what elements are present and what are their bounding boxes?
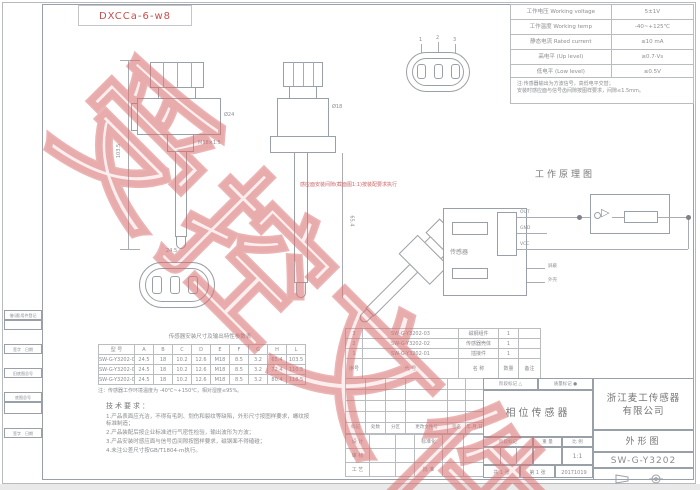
scan-edge	[0, 484, 700, 490]
margin-block-old-no: 旧底图总号	[4, 368, 42, 378]
principle-connector	[497, 212, 517, 256]
table-cell	[406, 390, 448, 401]
table-cell: 工 艺	[346, 463, 370, 477]
table-cell: 序号	[346, 359, 363, 379]
table-cell: 审 核	[346, 449, 370, 463]
marks-right-label: 质量标记 ●	[539, 382, 592, 388]
weight-value-cell	[533, 447, 562, 465]
table-cell: 静态电流 Rated current	[511, 35, 612, 50]
pin-label-1: 1	[419, 37, 422, 43]
param-note: 注：传感器工作环境温度为 -40℃~+150℃，相对湿度≤95%。	[98, 388, 242, 394]
wire-vcc	[517, 249, 688, 250]
table-cell	[406, 401, 448, 412]
table-cell	[370, 435, 396, 449]
table-cell	[466, 390, 484, 401]
table-cell: M18	[211, 365, 230, 375]
table-cell: 65.4	[268, 355, 287, 365]
table-cell	[464, 463, 484, 477]
product-name: 相位传感器	[484, 391, 592, 436]
table-cell: 分区	[386, 423, 406, 434]
margin-block	[4, 402, 42, 414]
table-cell	[386, 379, 406, 390]
wire-case	[527, 282, 545, 283]
table-cell: SW-G-Y3202-01	[363, 349, 459, 359]
side-connector-line	[313, 62, 314, 87]
table-cell: 数量	[499, 359, 519, 379]
margin-block-base-no: 底图总号	[4, 392, 42, 402]
table-cell: 3	[346, 329, 363, 339]
front-connector-line	[163, 62, 164, 88]
table-cell: 3.2	[249, 355, 268, 365]
table-cell: 标准化	[415, 435, 443, 449]
margin-label: 借(通)用件登记	[5, 313, 41, 319]
sheet-no-cell: 第 1 张	[520, 465, 555, 478]
table-cell	[448, 412, 466, 423]
drawing-no-cell: SW-G-Y3202	[593, 452, 694, 468]
table-cell: 型 号	[99, 345, 135, 355]
margin-label: 签字 日期	[5, 431, 41, 437]
table-cell: SW-G-Y3202-02	[99, 365, 135, 375]
table-cell: 设 计	[346, 435, 370, 449]
detail-pin	[451, 64, 460, 79]
table-cell	[366, 390, 386, 401]
table-cell	[386, 401, 406, 412]
product-name-cell: 相位传感器	[483, 390, 593, 437]
dimension-tick	[120, 60, 140, 61]
junction-dot	[577, 215, 582, 220]
margin-block-sign1: 签字 日期	[4, 344, 42, 354]
table-cell: 110.5	[287, 365, 306, 375]
table-cell	[396, 449, 415, 463]
junction-dot	[686, 215, 691, 220]
table-cell: 3.2	[249, 375, 268, 385]
side-tip	[296, 282, 306, 298]
terminal-slot	[188, 276, 198, 294]
table-cell: 高电平 (Up level)	[511, 50, 612, 65]
sheet-total-cell: 共 1 张	[483, 465, 520, 478]
table-cell: A	[135, 345, 154, 355]
comparator-icon: ▷	[601, 206, 609, 219]
drawing-number: SW-G-Y3202	[594, 453, 693, 469]
table-cell	[443, 449, 464, 463]
table-cell: 103.5	[287, 355, 306, 365]
table-cell	[448, 390, 466, 401]
projection-symbol-icon	[594, 474, 693, 484]
table-cell: D	[192, 345, 211, 355]
stage-divider	[516, 447, 517, 465]
table-cell: 5±1V	[611, 5, 693, 20]
table-cell: M18	[211, 375, 230, 385]
table-cell: ≤10 mA	[611, 35, 693, 50]
scale-label: 比 例	[563, 440, 592, 446]
sensor-label: 传感器	[450, 250, 468, 256]
wire-label-vcc: VCC	[520, 242, 529, 248]
front-connector-line	[191, 62, 192, 88]
table-cell: SW-G-Y3202-03	[363, 329, 459, 339]
tech-requirement-item: 1.产品表面应光洁，不得有毛刺、划伤和裂纹等缺陷，外形尺寸按图样要求，螺纹按标准…	[106, 414, 311, 428]
weight-header-cell: 重 量	[533, 437, 562, 447]
spec-note-box: 注:传感器输出为方波信号，高低电平交替； 安装时感应面与信号齿间隙按图样要求，间…	[510, 77, 694, 104]
marks-left-label: 阶段标记 △	[484, 382, 537, 388]
table-cell: 传感器壳体	[459, 339, 499, 349]
table-cell: 10.2	[173, 365, 192, 375]
table-cell	[396, 463, 415, 477]
table-cell	[466, 379, 484, 390]
scale-value: 1:1	[563, 454, 592, 460]
scale-value-cell: 1:1	[562, 447, 593, 465]
sensor-element	[452, 268, 488, 279]
wire-pullup	[688, 217, 689, 249]
front-hex	[167, 134, 194, 152]
table-cell	[443, 435, 464, 449]
table-cell: 18	[154, 365, 173, 375]
param-table: 型 号ABCDEFGHLSW-G-Y3202-0124.51810.212.6M…	[98, 344, 306, 385]
side-connector-line	[303, 62, 304, 87]
table-cell: B	[154, 345, 173, 355]
stage-header-cell: 阶段标记	[483, 437, 533, 447]
tech-requirement-item: 2.产品装配后按企业标准进行气密性检验，输出波形为方波；	[106, 430, 311, 437]
date-cell: 20171019	[555, 465, 593, 478]
table-cell: 1	[499, 329, 519, 339]
wire-label-gnd: GND	[520, 226, 530, 232]
stamp-box: DXCCa-6-w8	[78, 5, 192, 26]
marks-cell-right: 质量标记 ●	[538, 378, 593, 390]
table-cell	[406, 412, 448, 423]
table-cell: L	[287, 345, 306, 355]
table-cell: G	[249, 345, 268, 355]
dimension-tick	[120, 249, 140, 250]
table-cell: 1	[346, 349, 363, 359]
tech-requirement-item: 3.产品安装时感应面与信号齿间隙按图样要求，磁钢面不得磕碰；	[106, 439, 311, 446]
table-cell	[466, 401, 484, 412]
wire-shield	[527, 268, 545, 269]
table-cell: F	[230, 345, 249, 355]
table-cell: 批 准	[415, 463, 443, 477]
tech-requirement-item: 4.未注公差尺寸按GB/T1804-m执行。	[106, 448, 311, 455]
table-cell	[346, 401, 366, 412]
table-cell: 插接件	[459, 349, 499, 359]
dim-label-thread: M18×1.5	[198, 140, 221, 146]
table-cell: C	[173, 345, 192, 355]
table-cell	[464, 449, 484, 463]
table-cell: 磁钢组件	[459, 329, 499, 339]
table-cell: SW-G-Y3202-02	[363, 339, 459, 349]
sheet-no: 第 1 张	[521, 470, 554, 476]
table-cell	[448, 379, 466, 390]
wire-internal	[658, 217, 670, 218]
tech-requirements: 1.产品表面应光洁，不得有毛刺、划伤和裂纹等缺陷，外形尺寸按图样要求，螺纹按标准…	[106, 414, 311, 457]
side-connector-line	[293, 62, 294, 87]
table-cell: 工作温度 Working temp	[511, 20, 612, 35]
dim-label-side-dia: Ø18	[332, 104, 342, 110]
table-cell	[366, 379, 386, 390]
margin-label: 底图总号	[5, 395, 41, 401]
front-shaft	[175, 151, 187, 237]
date-value: 20171019	[556, 470, 592, 476]
table-cell: 8.5	[230, 355, 249, 365]
table-cell	[386, 412, 406, 423]
projection-symbol-cell	[593, 468, 694, 480]
table-cell: 10.2	[173, 375, 192, 385]
spec-note: 注:传感器输出为方波信号，高低电平交替； 安装时感应面与信号齿间隙按图样要求，间…	[517, 81, 689, 95]
table-cell	[464, 435, 484, 449]
table-cell: 更改文件号	[406, 423, 448, 434]
angled-shaft	[365, 264, 418, 317]
table-cell: 12.6	[192, 365, 211, 375]
front-grommet	[131, 103, 138, 131]
wire-label-out: OUT	[520, 210, 530, 216]
drawing-sheet: DXCCa-6-w8 工作电压 Working voltage5±1V工作温度 …	[0, 0, 700, 490]
table-cell: 处数	[366, 423, 386, 434]
company-cell: 浙江麦工传感器 有限公司	[593, 378, 694, 430]
company-name-line1: 浙江麦工传感器	[594, 392, 693, 405]
front-body	[137, 98, 221, 135]
table-cell	[519, 329, 541, 339]
dim-label-height: 103.5	[116, 144, 122, 158]
table-cell: 24.5	[135, 375, 154, 385]
table-cell	[346, 390, 366, 401]
table-cell	[386, 390, 406, 401]
table-cell	[466, 412, 484, 423]
table-cell: 名 称	[459, 359, 499, 379]
table-cell: SW-G-Y3202-03	[99, 375, 135, 385]
marks-cell-left: 阶段标记 △	[483, 378, 538, 390]
wire-gnd	[517, 233, 547, 234]
table-cell: 1	[499, 349, 519, 359]
table-cell	[448, 401, 466, 412]
table-cell: M18	[211, 355, 230, 365]
table-cell: 3.2	[249, 365, 268, 375]
wire-internal	[612, 217, 624, 218]
margin-block-borrow: 借(通)用件登记	[4, 310, 42, 320]
table-cell	[415, 449, 443, 463]
param-table-title: 传感器安装尺寸及输出特性参数表	[120, 334, 300, 340]
table-cell: H	[268, 345, 287, 355]
wire-label-case: 外壳	[548, 278, 557, 284]
side-flange	[270, 136, 336, 153]
comparator-circle	[594, 212, 601, 219]
table-cell: 2	[346, 339, 363, 349]
table-cell: -40~+125℃	[611, 20, 693, 35]
bom-table: 3SW-G-Y3202-03磁钢组件12SW-G-Y3202-02传感器壳体11…	[345, 328, 541, 379]
table-cell: 年.月.日	[466, 423, 484, 434]
front-tip	[176, 236, 186, 249]
change-record-table: 标记处数分区更改文件号签名年.月.日	[345, 378, 484, 434]
table-cell: 18	[154, 355, 173, 365]
red-note: 感应面安装间隙(截面图1:1)按装配要求执行	[300, 182, 397, 188]
terminal-slot	[170, 276, 180, 294]
dim-label-dia: Ø24	[224, 112, 234, 118]
table-cell: SW-G-Y3202-01	[99, 355, 135, 365]
table-cell	[370, 463, 396, 477]
company-name-line2: 有限公司	[594, 405, 693, 418]
side-body	[277, 98, 329, 137]
margin-label: 签字 日期	[5, 347, 41, 353]
pin-label-3: 3	[453, 37, 456, 43]
table-cell	[366, 401, 386, 412]
pin-label-2: 2	[436, 35, 439, 41]
signature-table: 设 计标准化审 核工 艺批 准	[345, 434, 484, 477]
table-cell: ≥0.7·Vs	[611, 50, 693, 65]
table-cell: 10.2	[173, 355, 192, 365]
resistor	[624, 211, 658, 223]
side-shaft	[294, 152, 308, 283]
margin-label: 旧底图总号	[5, 371, 41, 377]
dim-label-oval: 24.5	[166, 248, 177, 254]
table-cell	[366, 412, 386, 423]
table-cell: 80.4	[268, 375, 287, 385]
table-cell: 18	[154, 375, 173, 385]
table-cell	[519, 349, 541, 359]
table-cell	[443, 463, 464, 477]
table-cell	[346, 379, 366, 390]
margin-block	[4, 320, 42, 330]
front-connector-line	[177, 62, 178, 88]
principle-title: 工作原理图	[510, 170, 620, 180]
terminal-slot	[152, 276, 162, 294]
table-cell: 签名	[448, 423, 466, 434]
stage-label: 阶段标记	[484, 440, 532, 446]
table-cell: 标记	[346, 423, 366, 434]
table-cell: 1	[499, 339, 519, 349]
detail-pin	[417, 64, 426, 79]
sheet-total: 共 1 张	[484, 470, 519, 476]
table-cell	[396, 435, 415, 449]
sensor-element	[452, 222, 488, 235]
dimension-line	[128, 60, 129, 250]
table-cell: 118.5	[287, 375, 306, 385]
table-cell	[519, 339, 541, 349]
table-cell: 72.4	[268, 365, 287, 375]
table-cell: 代 号	[363, 359, 459, 379]
doc-type: 外形图	[594, 431, 693, 453]
table-cell: 8.5	[230, 365, 249, 375]
table-cell: E	[211, 345, 230, 355]
table-cell: 12.6	[192, 355, 211, 365]
table-cell: 24.5	[135, 365, 154, 375]
wire-label-shield: 屏蔽	[548, 264, 557, 270]
stage-divider	[500, 447, 501, 465]
doc-type-cell: 外形图	[593, 430, 694, 452]
table-cell: 12.6	[192, 375, 211, 385]
table-cell: 8.5	[230, 375, 249, 385]
stamp-code: DXCCa-6-w8	[79, 6, 191, 27]
table-cell: 24.5	[135, 355, 154, 365]
stage-boxes	[483, 447, 533, 465]
margin-block-sign2: 签字 日期	[4, 428, 42, 438]
spec-table: 工作电压 Working voltage5±1V工作温度 Working tem…	[510, 4, 694, 80]
tech-heading: 技术要求：	[106, 402, 151, 410]
weight-label: 重 量	[534, 440, 561, 446]
table-cell: 工作电压 Working voltage	[511, 5, 612, 20]
scale-header-cell: 比 例	[562, 437, 593, 447]
table-cell	[346, 412, 366, 423]
detail-pin	[434, 64, 443, 79]
table-cell	[406, 379, 448, 390]
table-cell	[370, 449, 396, 463]
table-cell: 备注	[519, 359, 541, 379]
